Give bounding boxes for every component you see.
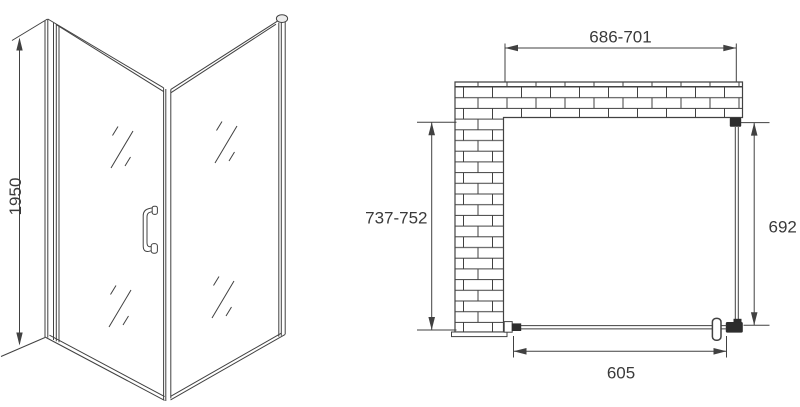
arrow-right-icon: [714, 348, 727, 355]
extension-line: [741, 123, 770, 326]
dimension-label-right-depth: 692: [769, 218, 797, 237]
arrow-up-icon: [751, 123, 758, 136]
arrow-up-icon: [428, 122, 435, 135]
brick-wall: [452, 82, 743, 337]
side-panel-plan: [726, 118, 743, 333]
extension-line: [12, 19, 48, 41]
dimension-label-height: 1950: [6, 178, 25, 216]
dimension-label-left-depth: 737-752: [365, 209, 427, 228]
side-panel-edge: [276, 15, 287, 337]
arrow-down-icon: [751, 312, 758, 325]
door-handle-plan-icon: [712, 318, 721, 340]
arrow-down-icon: [16, 333, 22, 346]
extension-line: [505, 44, 736, 82]
arrow-up-icon: [16, 38, 22, 51]
wall-footer: [452, 332, 508, 337]
extension-line: [514, 336, 727, 358]
drawing-svg: 1950 686-701: [0, 0, 800, 407]
perspective-view: 1950: [1, 15, 288, 401]
dimension-top-width: 686-701: [505, 28, 736, 82]
glass-shine-marks: [109, 122, 237, 328]
corner-post: [164, 88, 171, 401]
dimension-door-width: 605: [514, 336, 727, 383]
plan-view: 686-701 737-752 692 605: [365, 28, 797, 383]
door-plan: [504, 318, 726, 340]
top-frame: [48, 19, 278, 93]
bottom-rails: [45, 333, 285, 400]
arrow-right-icon: [723, 45, 736, 52]
wall-outline: [455, 82, 743, 332]
arrow-left-icon: [505, 45, 518, 52]
door-hinge-frame: [45, 19, 59, 342]
dimension-height-1950: 1950: [1, 19, 48, 357]
corner-bracket-stub: [734, 319, 742, 323]
shower-enclosure-technical-drawing: 1950 686-701: [0, 0, 800, 407]
arrow-down-icon: [428, 317, 435, 330]
corner-bracket: [726, 322, 743, 333]
dimension-left-depth: 737-752: [365, 122, 456, 330]
arrow-left-icon: [514, 348, 527, 355]
panel-wall-bracket: [730, 118, 741, 127]
dimension-label-door-width: 605: [607, 364, 635, 383]
extension-line: [1, 338, 45, 357]
door-clamp: [512, 323, 521, 331]
wall-profile-clamp: [504, 322, 512, 333]
door-handle-icon: [143, 206, 157, 253]
dimension-label-top-width: 686-701: [589, 28, 651, 47]
dimension-right-depth: 692: [741, 123, 797, 326]
post-top-cap: [276, 15, 287, 23]
